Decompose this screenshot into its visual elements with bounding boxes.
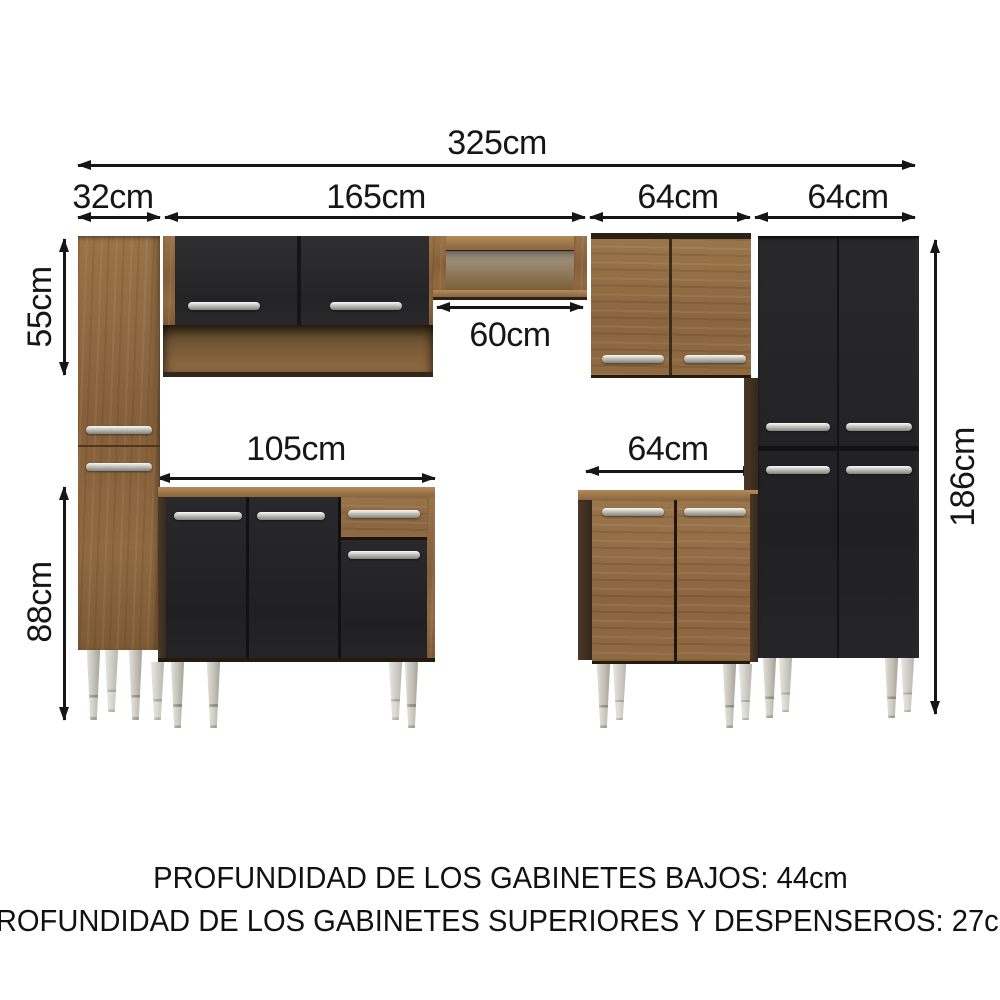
cabinet-leg bbox=[86, 650, 101, 720]
center-base-bottom-edge bbox=[158, 658, 435, 662]
cabinet-leg bbox=[762, 658, 777, 718]
right-base-side-panel bbox=[578, 492, 592, 660]
upper-cabinet-open-niche bbox=[163, 325, 433, 377]
dim-arrow-total-width bbox=[78, 164, 915, 167]
dim-label-section-center: 165cm bbox=[326, 180, 426, 214]
center-base-right-side bbox=[427, 497, 435, 658]
dim-arrow-section-tall-right bbox=[755, 216, 915, 219]
center-base-door-handle bbox=[174, 512, 242, 520]
center-base-drawer-handle bbox=[348, 510, 420, 518]
center-base-door-handle bbox=[348, 551, 420, 559]
tall-pantry-mid-divider bbox=[758, 446, 919, 451]
tall-pantry-door-handle bbox=[766, 423, 830, 431]
cabinet-leg bbox=[778, 658, 793, 712]
pantry-door-seam bbox=[78, 445, 160, 447]
middle-shelf-top bbox=[433, 236, 587, 250]
upper-cabinet-door-handle bbox=[330, 302, 402, 310]
dim-arrow-niche-width bbox=[437, 306, 583, 309]
cabinet-leg bbox=[738, 664, 753, 720]
dim-arrow-right-base-width bbox=[586, 470, 756, 473]
dim-label-right-base-width: 64cm bbox=[627, 432, 708, 466]
middle-shelf-bottom bbox=[433, 290, 587, 300]
cabinet-leg bbox=[170, 662, 185, 728]
pantry-lower-door-handle bbox=[86, 463, 152, 471]
tall-pantry-door-handle bbox=[766, 466, 830, 474]
dim-label-base-height: 88cm bbox=[23, 561, 57, 642]
center-base-door-handle bbox=[257, 512, 325, 520]
dim-arrow-section-pantry bbox=[78, 216, 160, 219]
footer-depth-upper-cabinets-text: PROFUNDIDAD DE LOS GABINETES SUPERIORES … bbox=[0, 903, 1000, 939]
dim-arrow-center-base-width bbox=[157, 477, 435, 480]
dim-label-section-pantry: 32cm bbox=[72, 180, 153, 214]
right-base-wood-door-right bbox=[677, 500, 750, 664]
center-base-black-door-left bbox=[166, 497, 246, 662]
cabinet-leg bbox=[722, 664, 737, 728]
upper-cabinet-black-door-right bbox=[301, 236, 429, 325]
dim-label-total-width: 325cm bbox=[447, 126, 547, 160]
upper-right-cabinet-door-handle bbox=[602, 355, 664, 363]
cabinet-leg bbox=[884, 658, 899, 718]
center-base-countertop bbox=[158, 487, 435, 497]
cabinet-leg bbox=[388, 662, 403, 720]
dim-label-upper-height: 55cm bbox=[23, 266, 57, 347]
upper-cabinet-door-handle bbox=[188, 302, 260, 310]
footer-depth-base-cabinets: PROFUNDIDAD DE LOS GABINETES BAJOS: 44cm bbox=[0, 860, 1000, 896]
cabinet-leg bbox=[900, 658, 915, 712]
dim-label-total-height: 186cm bbox=[946, 427, 980, 527]
right-base-wood-door-left bbox=[592, 500, 674, 664]
cabinet-leg bbox=[612, 664, 627, 720]
upper-right-cabinet-door-handle bbox=[684, 355, 746, 363]
cabinet-leg bbox=[404, 662, 419, 728]
upper-right-cabinet-door-gap bbox=[669, 239, 672, 375]
footer-depth-base-cabinets-text: PROFUNDIDAD DE LOS GABINETES BAJOS: 44cm bbox=[153, 860, 848, 896]
dim-label-section-tall-right: 64cm bbox=[807, 180, 888, 214]
right-base-countertop bbox=[578, 490, 758, 500]
dim-arrow-upper-height bbox=[63, 239, 66, 375]
dim-label-section-upper-right: 64cm bbox=[637, 180, 718, 214]
middle-shelf-interior bbox=[433, 250, 587, 290]
dim-arrow-total-height bbox=[934, 240, 937, 714]
dim-label-center-base-width: 105cm bbox=[246, 432, 346, 466]
dim-arrow-section-center bbox=[165, 216, 585, 219]
right-base-door-handle bbox=[684, 508, 746, 516]
cabinet-leg bbox=[150, 662, 165, 720]
right-base-door-handle bbox=[602, 508, 664, 516]
cabinet-leg bbox=[104, 650, 119, 712]
dim-arrow-base-height bbox=[63, 487, 66, 720]
kitchen-dimension-diagram: 325cm 32cm 165cm 64cm 64cm 55cm 88cm 186… bbox=[0, 0, 1000, 1000]
dim-arrow-section-upper-right bbox=[590, 216, 750, 219]
right-base-right-edge bbox=[750, 494, 758, 662]
dim-label-niche-width: 60cm bbox=[469, 318, 550, 352]
pantry-upper-door-handle bbox=[86, 426, 152, 434]
right-base-bottom-edge bbox=[592, 661, 750, 664]
tall-pantry-door-handle bbox=[846, 423, 912, 431]
upper-cabinet-black-door-left bbox=[175, 236, 297, 325]
footer-depth-upper-cabinets: PROFUNDIDAD DE LOS GABINETES SUPERIORES … bbox=[0, 903, 1000, 939]
cabinet-leg bbox=[596, 664, 611, 728]
tall-pantry-door-handle bbox=[846, 466, 912, 474]
pantry-cabinet-left bbox=[78, 236, 160, 650]
cabinet-leg bbox=[128, 650, 143, 720]
center-base-black-door-mid bbox=[249, 497, 338, 662]
cabinet-leg bbox=[206, 662, 221, 728]
